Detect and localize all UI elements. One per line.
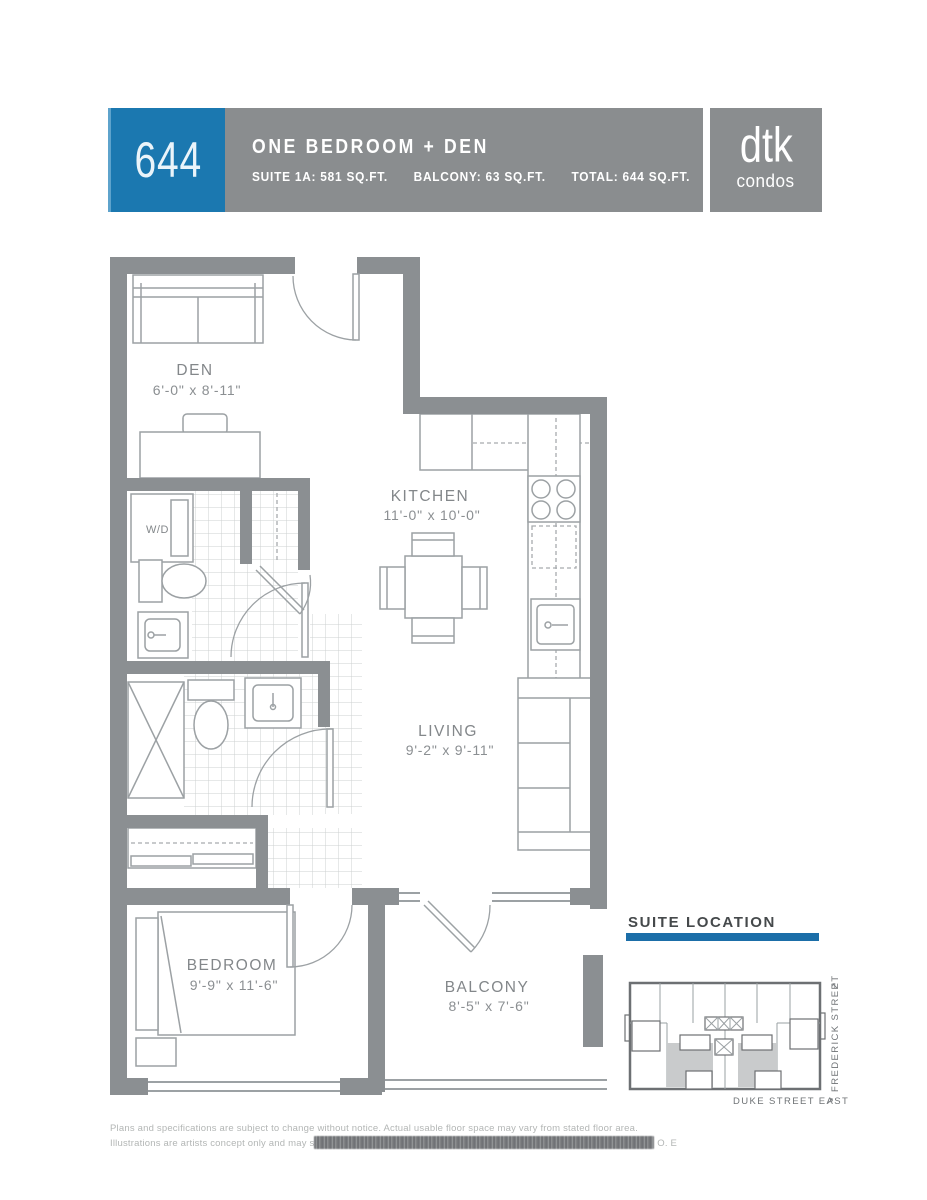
street-label-right: FREDERICK STREET bbox=[830, 975, 841, 1092]
disclaimer: Plans and specifications are subject to … bbox=[110, 1121, 810, 1151]
disclaimer-line2-text: Illustrations are artists concept only a… bbox=[110, 1138, 314, 1149]
balcony-dims: 8'-5" x 7'-6" bbox=[449, 998, 530, 1014]
floorplan-page: 644 ONE BEDROOM + DEN SUITE 1A: 581 SQ.F… bbox=[0, 0, 927, 1200]
suite-location-underline bbox=[626, 933, 819, 941]
dining-set bbox=[380, 533, 487, 643]
bath1-toilet bbox=[139, 560, 206, 602]
building-keyplan bbox=[625, 983, 825, 1089]
disclaimer-line2-tail: O. E bbox=[654, 1138, 677, 1149]
kitchen-dims: 11'-0" x 10'-0" bbox=[383, 507, 480, 523]
bath2-sink bbox=[245, 678, 301, 728]
disclaimer-line1: Plans and specifications are subject to … bbox=[110, 1121, 810, 1136]
bedroom-label: BEDROOM bbox=[187, 957, 278, 974]
floorplan-drawing: DEN 6'-0" x 8'-11" KITCHEN 11'-0" x 10'-… bbox=[0, 0, 927, 1200]
north-arrow-right: ↗ bbox=[830, 981, 841, 990]
den-sofa bbox=[133, 275, 263, 343]
den-label: DEN bbox=[176, 362, 213, 379]
north-arrow-bottom: ↗ bbox=[826, 1096, 835, 1107]
bath1-sink bbox=[138, 612, 188, 658]
disclaimer-line2: Illustrations are artists concept only a… bbox=[110, 1136, 810, 1151]
den-desk bbox=[140, 414, 260, 478]
stove bbox=[528, 476, 580, 522]
balcony-door bbox=[424, 901, 490, 952]
living-sofa bbox=[518, 678, 592, 850]
bedroom-closet bbox=[128, 828, 256, 868]
suite-location-title: SUITE LOCATION bbox=[628, 914, 776, 931]
bedroom-door bbox=[287, 905, 352, 967]
bath2-shower bbox=[128, 682, 184, 798]
living-label: LIVING bbox=[418, 723, 478, 740]
kitchen-label: KITCHEN bbox=[391, 488, 470, 505]
washer-dryer-label: W/D bbox=[146, 524, 169, 536]
watermark-smudge bbox=[314, 1136, 654, 1149]
suite-location: SUITE LOCATION bbox=[625, 914, 849, 1107]
entry-door bbox=[293, 274, 359, 340]
living-dims: 9'-2" x 9'-11" bbox=[406, 742, 494, 758]
bedroom-dims: 9'-9" x 11'-6" bbox=[190, 977, 278, 993]
kitchen-sink bbox=[531, 599, 580, 650]
balcony-label: BALCONY bbox=[445, 979, 530, 996]
den-dims: 6'-0" x 8'-11" bbox=[153, 382, 241, 398]
kitchen-counter-right bbox=[528, 414, 580, 715]
